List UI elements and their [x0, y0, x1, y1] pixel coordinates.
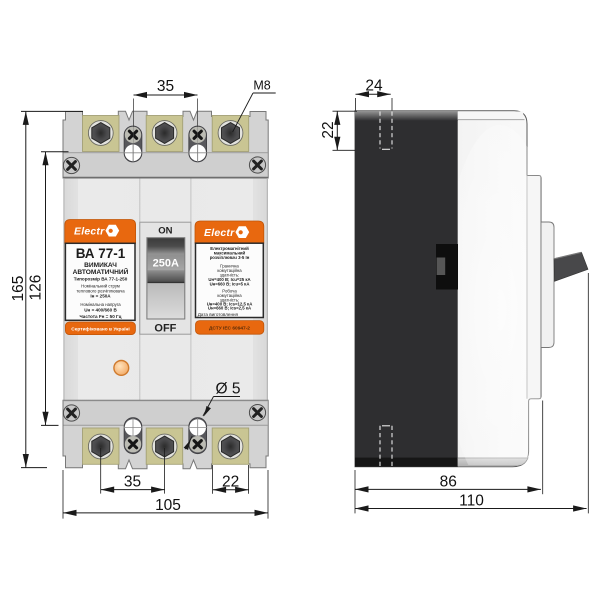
svg-text:ДСТУ ІЕС 60947-2: ДСТУ ІЕС 60947-2 [209, 326, 250, 332]
svg-text:OFF: OFF [154, 322, 176, 334]
svg-text:Uн = 400/660 В: Uн = 400/660 В [84, 308, 117, 313]
svg-text:Дата виготовлення: Дата виготовлення [198, 312, 239, 317]
svg-text:110: 110 [459, 492, 484, 509]
svg-text:Uн=660 В; Icu=5 кА: Uн=660 В; Icu=5 кА [210, 281, 250, 286]
svg-text:Ø 5: Ø 5 [216, 381, 241, 398]
svg-text:22: 22 [222, 473, 239, 490]
svg-text:Частота Fн = 50 Гц: Частота Fн = 50 Гц [80, 314, 122, 319]
svg-text:Типорозмір ВА 77-1-250: Типорозмір ВА 77-1-250 [74, 277, 128, 282]
svg-text:Ін = 250А: Ін = 250А [90, 294, 111, 299]
svg-text:24: 24 [365, 78, 383, 95]
svg-text:250A: 250A [153, 257, 179, 269]
svg-text:ON: ON [158, 226, 172, 237]
svg-text:126: 126 [28, 275, 45, 301]
svg-text:ВА 77-1: ВА 77-1 [76, 246, 126, 261]
svg-text:165: 165 [10, 276, 27, 302]
svg-text:22: 22 [320, 121, 337, 138]
svg-text:Сертифіковано в Україні: Сертифіковано в Україні [71, 325, 129, 332]
svg-text:Uн=660 В; Ics=2,5 кА: Uн=660 В; Ics=2,5 кА [208, 306, 251, 311]
svg-text:35: 35 [157, 78, 174, 95]
svg-text:АВТОМАТИЧНИЙ: АВТОМАТИЧНИЙ [73, 267, 129, 276]
svg-text:ВИМИКАЧ: ВИМИКАЧ [84, 262, 117, 269]
svg-text:Номінальна напруга: Номінальна напруга [80, 302, 121, 307]
svg-text:розчіплювач 3-5 Ін: розчіплювач 3-5 Ін [210, 255, 250, 260]
svg-text:86: 86 [440, 473, 457, 490]
svg-text:M8: M8 [253, 78, 270, 92]
svg-text:105: 105 [155, 497, 181, 514]
svg-text:35: 35 [124, 473, 141, 490]
